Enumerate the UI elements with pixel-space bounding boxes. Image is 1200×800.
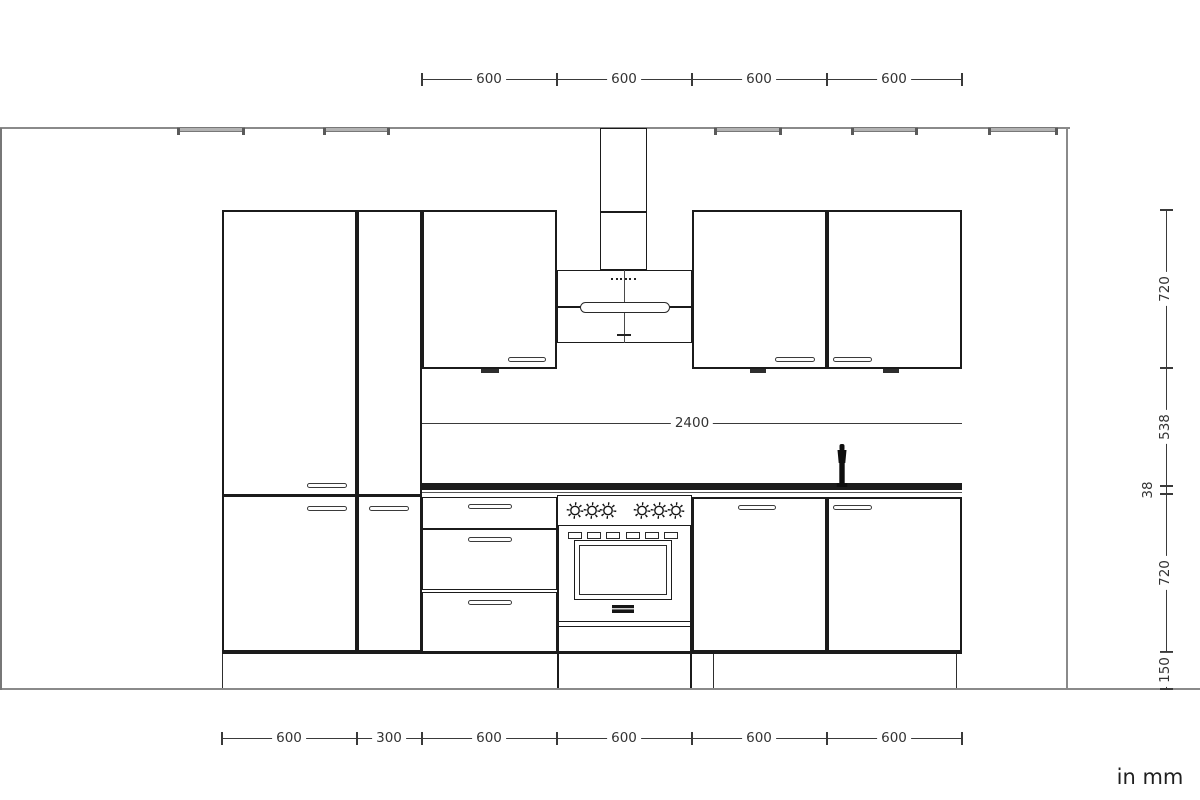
dim-label: 538	[1158, 410, 1174, 444]
dim-label: 600	[607, 72, 641, 88]
dim-label: 600	[472, 72, 506, 88]
dim-label: 720	[1158, 272, 1174, 306]
dim-label: 600	[472, 731, 506, 747]
dim-tick	[1160, 209, 1173, 211]
strip-endcap-icon	[242, 128, 245, 135]
countertop	[422, 483, 962, 490]
under-cabinet-light	[481, 369, 499, 373]
dim-tick	[421, 73, 423, 86]
dim-label: 600	[742, 731, 776, 747]
door-handle	[833, 357, 872, 362]
burner-knobs-icon	[557, 495, 692, 526]
floor-line	[0, 688, 1200, 690]
oven-drawer-line	[557, 626, 692, 627]
dim-label: 720	[1158, 556, 1174, 590]
dim-tick	[1160, 485, 1173, 487]
tall-cabinet-narrow	[357, 210, 422, 652]
drawer-handle	[468, 537, 512, 542]
kitchen-elevation-drawing: 600 600 600 600 2400	[0, 0, 1200, 800]
hood-duct-joint	[600, 211, 647, 213]
ceiling-light-strip	[851, 127, 918, 132]
dim-label: 600	[272, 731, 306, 747]
door-handle	[508, 357, 546, 362]
dim-tick	[826, 73, 828, 86]
door-handle	[307, 483, 347, 488]
dim-label: 300	[372, 731, 406, 747]
oven-drawer-line	[557, 621, 692, 622]
door-handle	[369, 506, 409, 511]
ceiling-light-strip	[988, 127, 1058, 132]
ceiling-light-strip	[177, 127, 245, 132]
units-note: in mm	[1117, 765, 1184, 789]
dim-tick	[556, 732, 558, 745]
under-cabinet-light	[883, 369, 899, 373]
left-wall-line	[0, 128, 2, 690]
dim-label: 2400	[671, 416, 713, 432]
hood-height-mark	[617, 334, 631, 336]
strip-endcap-icon	[779, 128, 782, 135]
door-handle	[307, 506, 347, 511]
dim-label: 38	[1141, 477, 1157, 502]
under-cabinet-light	[750, 369, 766, 373]
strip-endcap-icon	[323, 128, 326, 135]
dim-label: 600	[742, 72, 776, 88]
strip-endcap-icon	[177, 128, 180, 135]
dim-tick	[691, 73, 693, 86]
dim-tick	[961, 73, 963, 86]
dim-tick	[1160, 367, 1173, 369]
dim-tick	[1160, 493, 1173, 495]
oven-door-window-inner	[579, 545, 667, 595]
door-handle	[833, 505, 872, 510]
tall-cabinet-left	[222, 210, 357, 652]
dim-label: 600	[877, 731, 911, 747]
dim-tick	[356, 732, 358, 745]
strip-endcap-icon	[714, 128, 717, 135]
dim-label: 150	[1158, 653, 1174, 687]
ceiling-light-strip	[714, 127, 782, 132]
right-wall-line	[1066, 128, 1068, 690]
dim-tick	[1160, 688, 1173, 690]
strip-endcap-icon	[988, 128, 991, 135]
drawer-handle	[468, 600, 512, 605]
oven-vent-slot	[587, 532, 601, 539]
hood-control-dots-icon	[611, 278, 638, 297]
plinth-edge	[222, 654, 223, 688]
door-handle	[738, 505, 776, 510]
wall-cabinet-right	[827, 210, 962, 369]
oven-vent-slot	[626, 532, 640, 539]
oven-vent-slot	[645, 532, 659, 539]
dim-label: 600	[607, 731, 641, 747]
dim-tick	[421, 732, 423, 745]
dim-line	[222, 738, 962, 739]
oven-vent-slot	[568, 532, 582, 539]
dim-tick	[691, 732, 693, 745]
wall-cabinet-left	[422, 210, 557, 369]
oven-handle	[612, 605, 634, 613]
base-cabinet-right-door	[827, 497, 962, 652]
strip-endcap-icon	[1055, 128, 1058, 135]
plinth-edge	[713, 654, 714, 688]
drawer-handle	[468, 504, 512, 509]
dim-tick	[826, 732, 828, 745]
plinth-edge	[956, 654, 957, 688]
dim-tick	[961, 732, 963, 745]
wall-cabinet-mid	[692, 210, 827, 369]
strip-endcap-icon	[387, 128, 390, 135]
base-bottom-line	[222, 651, 962, 654]
hood-duct	[600, 128, 647, 270]
base-cabinet-sink-door	[692, 497, 827, 652]
oven-vent-slot	[606, 532, 620, 539]
oven-vent-slot	[664, 532, 678, 539]
door-handle	[775, 357, 815, 362]
dim-tick	[221, 732, 223, 745]
drawer-front-top	[422, 497, 557, 529]
ceiling-light-strip	[323, 127, 390, 132]
faucet-icon	[833, 444, 851, 488]
dim-tick	[556, 73, 558, 86]
countertop-front-edge	[422, 492, 962, 493]
strip-endcap-icon	[915, 128, 918, 135]
tall-cabinet-door-split	[222, 494, 422, 497]
strip-endcap-icon	[851, 128, 854, 135]
dim-label: 600	[877, 72, 911, 88]
hood-visor-edge	[580, 302, 670, 313]
